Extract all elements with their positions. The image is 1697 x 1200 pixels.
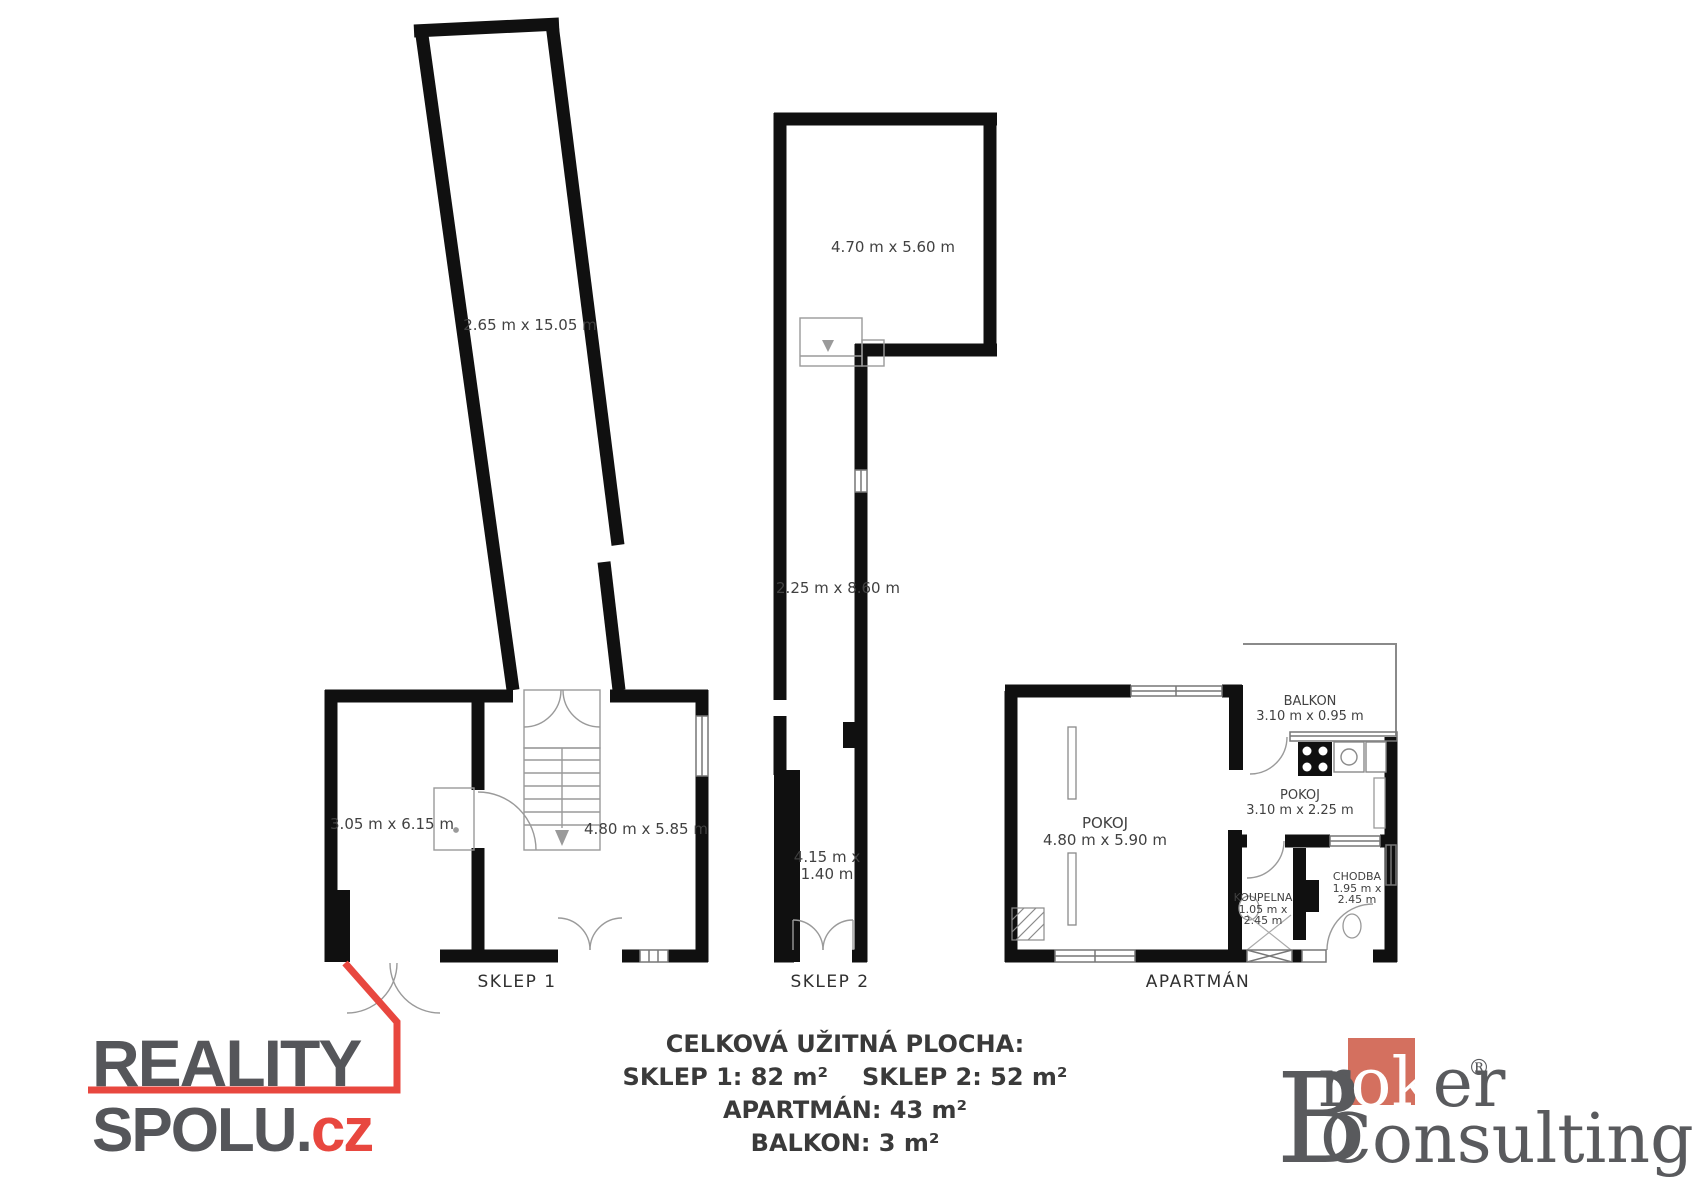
- sklep1-window: [696, 716, 708, 776]
- sklep1-caption: SKLEP 1: [477, 973, 556, 993]
- floorplan-drawing: [0, 0, 1697, 1200]
- koupelna-dims-l2: 2.45 m: [1234, 915, 1293, 927]
- apartman-kitchen-wall: [1229, 685, 1243, 770]
- sklep1-bottom-window: [640, 950, 668, 962]
- reality-spolu-logo-spolu: SPOLU.: [92, 1096, 311, 1165]
- pokoj-main-dims: 4.80 m x 5.90 m: [1043, 832, 1167, 849]
- pokoj2-label: POKOJ 3.10 m x 2.25 m: [1246, 789, 1353, 819]
- sklep1-corner-wall: [325, 890, 350, 962]
- balkon-label: BALKON 3.10 m x 0.95 m: [1256, 695, 1363, 725]
- sklep1-corridor-walls: [414, 24, 619, 690]
- sklep2-window: [855, 470, 867, 492]
- summary-sklep2: SKLEP 2: 52 m²: [862, 1063, 1067, 1091]
- sklep1-left-room-dims: 3.05 m x 6.15 m: [330, 816, 454, 833]
- sklep2-landing: [800, 318, 884, 366]
- sklep1-corridor-dims: 2.65 m x 15.05 m: [463, 317, 597, 334]
- kitchen-window: [1290, 732, 1397, 741]
- sklep1-room-door: [558, 918, 622, 950]
- koupelna-name: KOUPELNA: [1234, 892, 1293, 904]
- chodba-dims-l2: 2.45 m: [1333, 894, 1382, 906]
- summary-balkon: BALKON: 3 m²: [751, 1127, 940, 1160]
- sklep2-caption: SKLEP 2: [790, 973, 869, 993]
- summary-sklepy: SKLEP 1: 82 m²SKLEP 2: 52 m²: [623, 1061, 1068, 1094]
- sklep2-down-arrow: [822, 340, 834, 352]
- pokoj2-dims: 3.10 m x 2.25 m: [1246, 804, 1353, 819]
- pokoj2-name: POKOJ: [1246, 789, 1353, 804]
- sklep2-corridor-dims: 2.25 m x 8.60 m: [776, 580, 900, 597]
- summary-apartman: APARTMÁN: 43 m²: [723, 1094, 967, 1127]
- broker-consulting-logo-registered: ®: [1468, 1056, 1490, 1081]
- chodba-name: CHODBA: [1333, 871, 1382, 883]
- apartman-top-window: [1131, 686, 1222, 696]
- sklep2-narrow-dims-l1: 4.15 m x: [794, 849, 860, 866]
- summary-title: CELKOVÁ UŽITNÁ PLOCHA:: [666, 1028, 1024, 1061]
- balkon-name: BALKON: [1256, 695, 1363, 710]
- balkon-dims: 3.10 m x 0.95 m: [1256, 710, 1363, 725]
- sklep2-bottom-door: [793, 920, 853, 950]
- sklep1-stairs-down-arrow: [555, 830, 569, 846]
- reality-spolu-logo-line1: REALITY: [92, 1030, 360, 1096]
- apartman-caption: APARTMÁN: [1146, 973, 1250, 993]
- pokoj-main-name: POKOJ: [1043, 815, 1167, 832]
- sklep1-entrance-door: [347, 963, 440, 1013]
- balkon-door-arc: [1250, 737, 1287, 774]
- broker-consulting-logo-consulting: Consulting: [1320, 1106, 1694, 1174]
- floorplan-image: 2.65 m x 15.05 m 4.70 m x 5.60 m 2.25 m …: [0, 0, 1697, 1200]
- sklep1-right-room-dims: 4.80 m x 5.85 m: [584, 821, 708, 838]
- sklep2-pillar: [843, 722, 867, 748]
- sklep2-narrow-dims: 4.15 m x 1.40 m: [794, 849, 860, 884]
- koupelna-label: KOUPELNA 1.05 m x 2.45 m: [1234, 892, 1293, 927]
- pokoj-main-label: POKOJ 4.80 m x 5.90 m: [1043, 815, 1167, 850]
- apartman-fixture-block: [1293, 880, 1319, 912]
- sklep2-narrow-dims-l2: 1.40 m: [794, 866, 860, 883]
- reality-spolu-logo-cz: cz: [311, 1096, 372, 1165]
- reality-spolu-logo-line2: SPOLU.cz: [92, 1100, 372, 1162]
- sklep2-room-dims: 4.70 m x 5.60 m: [831, 239, 955, 256]
- summary-sklep1: SKLEP 1: 82 m²: [623, 1063, 828, 1091]
- chodba-label: CHODBA 1.95 m x 2.45 m: [1333, 871, 1382, 906]
